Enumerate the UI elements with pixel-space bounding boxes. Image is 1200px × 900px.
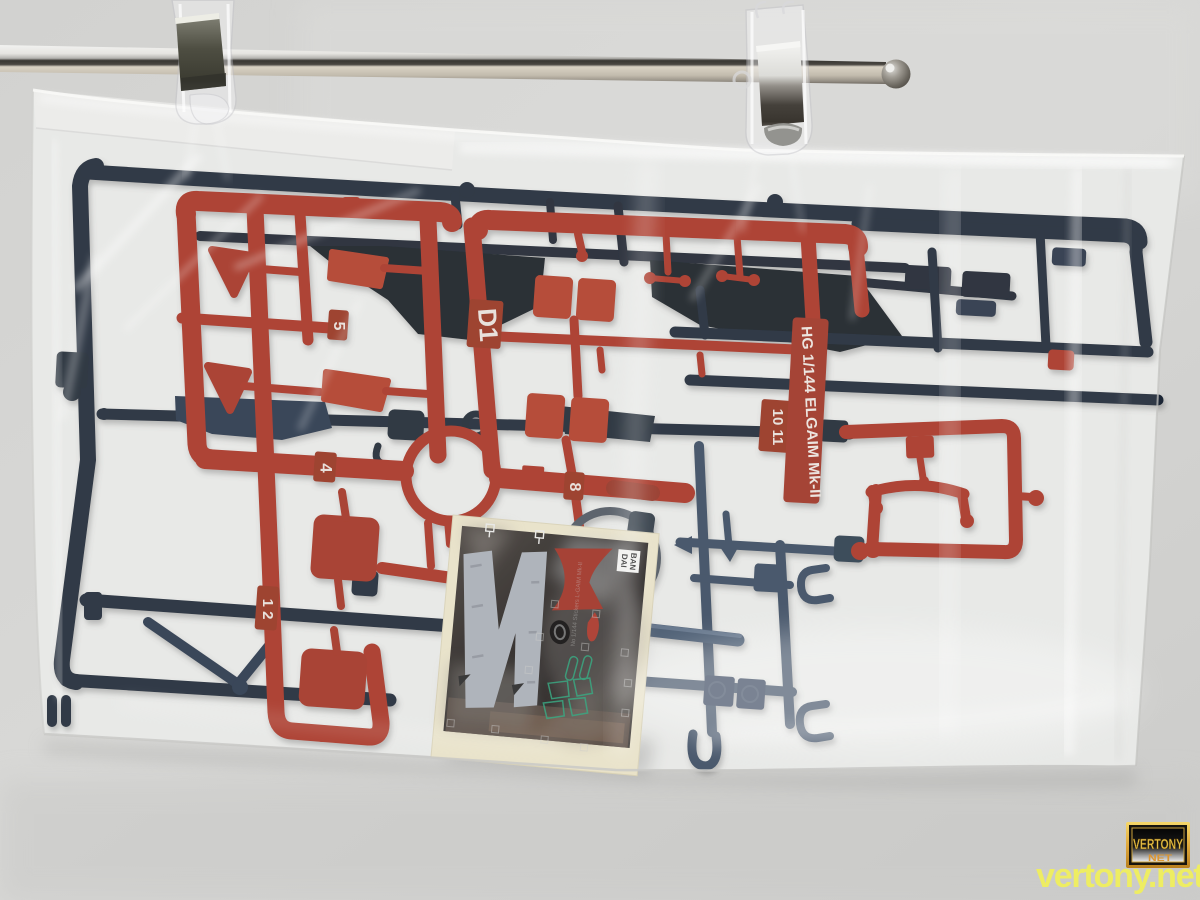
svg-text:VERTONY: VERTONY	[1133, 836, 1183, 853]
svg-text:vertony.net: vertony.net	[1036, 857, 1200, 895]
